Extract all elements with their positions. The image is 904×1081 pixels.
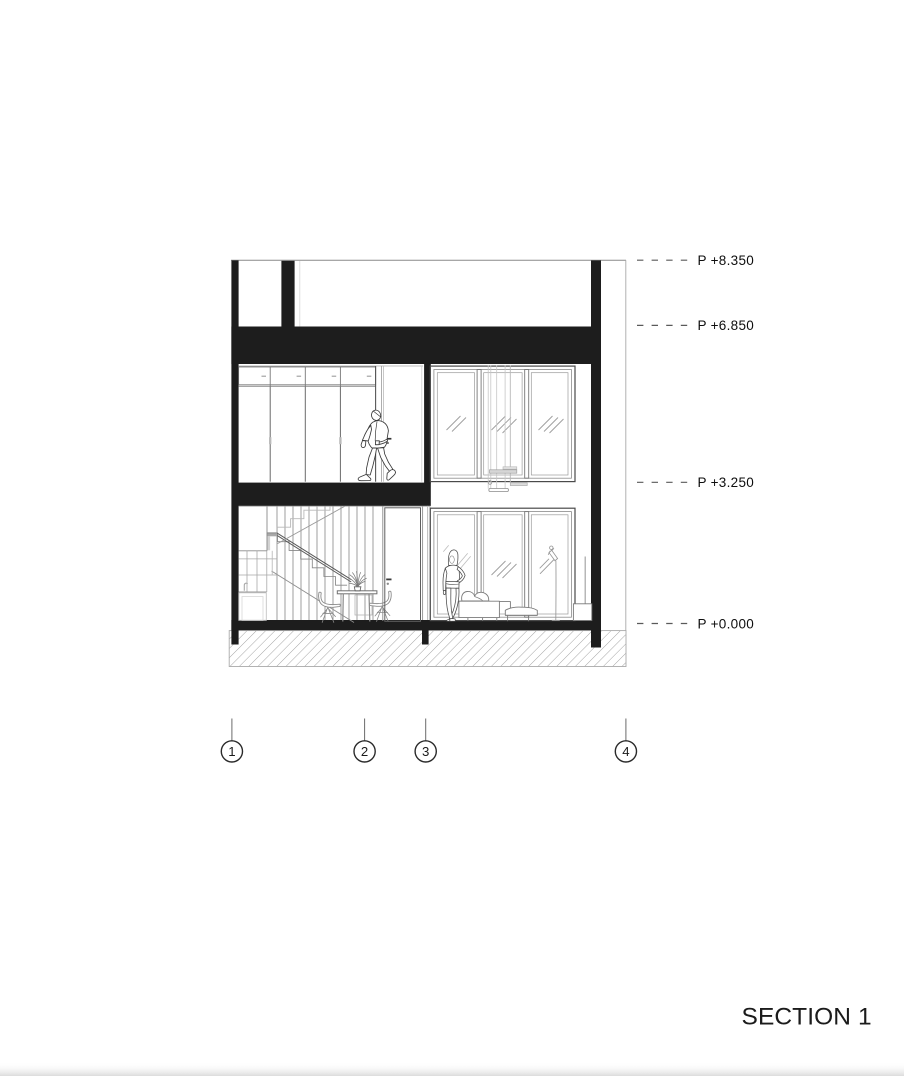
svg-text:P +6.850: P +6.850	[698, 318, 755, 333]
svg-text:P +8.350: P +8.350	[698, 253, 755, 268]
svg-text:P +3.250: P +3.250	[698, 475, 755, 490]
svg-text:SECTION 1: SECTION 1	[742, 1004, 872, 1031]
svg-text:P +0.000: P +0.000	[698, 616, 755, 631]
svg-text:4: 4	[622, 744, 629, 759]
svg-text:1: 1	[228, 744, 235, 759]
svg-text:3: 3	[422, 744, 429, 759]
svg-text:2: 2	[361, 744, 368, 759]
